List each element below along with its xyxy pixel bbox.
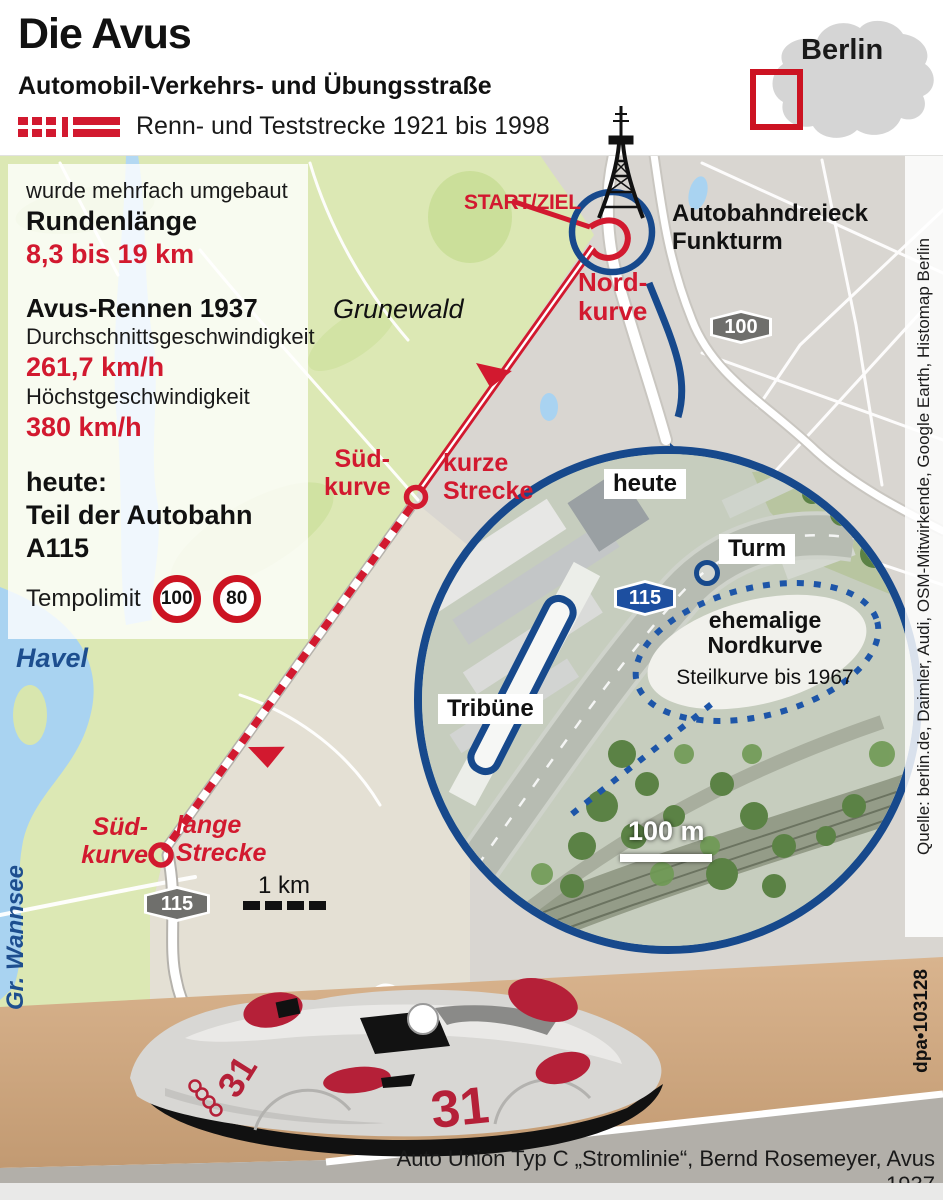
speed-limit-sign-100: 100 (153, 575, 201, 623)
info-box: wurde mehrfach umgebaut Rundenlänge 8,3 … (8, 164, 308, 639)
berlin-silhouette (745, 6, 941, 152)
inset-label-ehemalige-nordkurve: ehemalige Nordkurve (670, 608, 860, 659)
avg-speed-label: Durchschnittsgeschwindigkeit (26, 324, 294, 351)
page-subtitle: Automobil-Verkehrs- und Übungsstraße (18, 72, 492, 101)
infographic-die-avus: heute Turm 115 ehemalige Nordkurve Steil… (0, 0, 943, 1200)
inset-label-tribuene: Tribüne (438, 694, 543, 724)
label-start-ziel: START/ZIEL (464, 191, 581, 215)
header: Die Avus Automobil-Verkehrs- und Übungss… (0, 0, 943, 156)
funkturm-icon (597, 106, 645, 220)
berlin-label: Berlin (801, 34, 883, 67)
car-number-side: 31 (428, 1076, 492, 1140)
auto-union-car-illustration: 31 31 (105, 958, 685, 1173)
track-legend-icon (18, 115, 120, 139)
label-kurze-strecke: kurze Strecke (443, 450, 533, 505)
label-nordkurve: Nord- kurve (578, 268, 647, 325)
today-label: heute: (26, 466, 294, 499)
satellite-inset: heute Turm 115 ehemalige Nordkurve Steil… (414, 446, 922, 954)
inset-label-steilkurve: Steilkurve bis 1967 (662, 666, 868, 690)
tempo-limit-row: Tempolimit 100 80 (26, 575, 294, 623)
label-autobahndreieck-funkturm: Autobahndreieck Funkturm (672, 200, 868, 255)
lap-length-label: Rundenlänge (26, 205, 294, 238)
top-speed-label: Höchstgeschwindigkeit (26, 384, 294, 411)
inset-scale-label: 100 m (628, 816, 705, 847)
source-credit: Quelle: berlin.de, Daimler, Audi, OSM-Mi… (914, 238, 934, 855)
page-title: Die Avus (18, 10, 191, 59)
berlin-locator-map: Berlin (745, 6, 941, 152)
label-grunewald: Grunewald (333, 294, 464, 325)
inset-label-turm: Turm (719, 534, 795, 564)
label-suedkurve-nord: Süd- kurve (324, 446, 390, 501)
map-scale-bar (243, 901, 326, 910)
bottom-strip (0, 1183, 943, 1200)
race-title: Avus-Rennen 1937 (26, 293, 294, 325)
label-lange-strecke: lange Strecke (176, 812, 266, 867)
label-gr-wannsee: Gr. Wannsee (2, 820, 30, 1010)
turm-marker-icon (694, 560, 720, 586)
label-suedkurve-sued: Süd- kurve (48, 814, 148, 869)
info-intro: wurde mehrfach umgebaut (26, 178, 294, 205)
speed-limit-sign-80: 80 (213, 575, 261, 623)
inset-label-heute: heute (604, 469, 686, 499)
lap-length-value: 8,3 bis 19 km (26, 238, 294, 271)
legend-label: Renn- und Teststrecke 1921 bis 1998 (136, 112, 550, 141)
map-scale-label: 1 km (258, 872, 310, 900)
today-value: Teil der Autobahn A115 (26, 499, 294, 565)
top-speed-value: 380 km/h (26, 411, 294, 444)
label-havel: Havel (16, 643, 88, 674)
avg-speed-value: 261,7 km/h (26, 351, 294, 384)
dpa-id: dpa•103128 (901, 948, 943, 1093)
legend: Renn- und Teststrecke 1921 bis 1998 (18, 112, 550, 141)
source-credit-strip: Quelle: berlin.de, Daimler, Audi, OSM-Mi… (905, 155, 943, 937)
tempo-label: Tempolimit (26, 584, 141, 613)
inset-scale-bar (620, 854, 712, 862)
